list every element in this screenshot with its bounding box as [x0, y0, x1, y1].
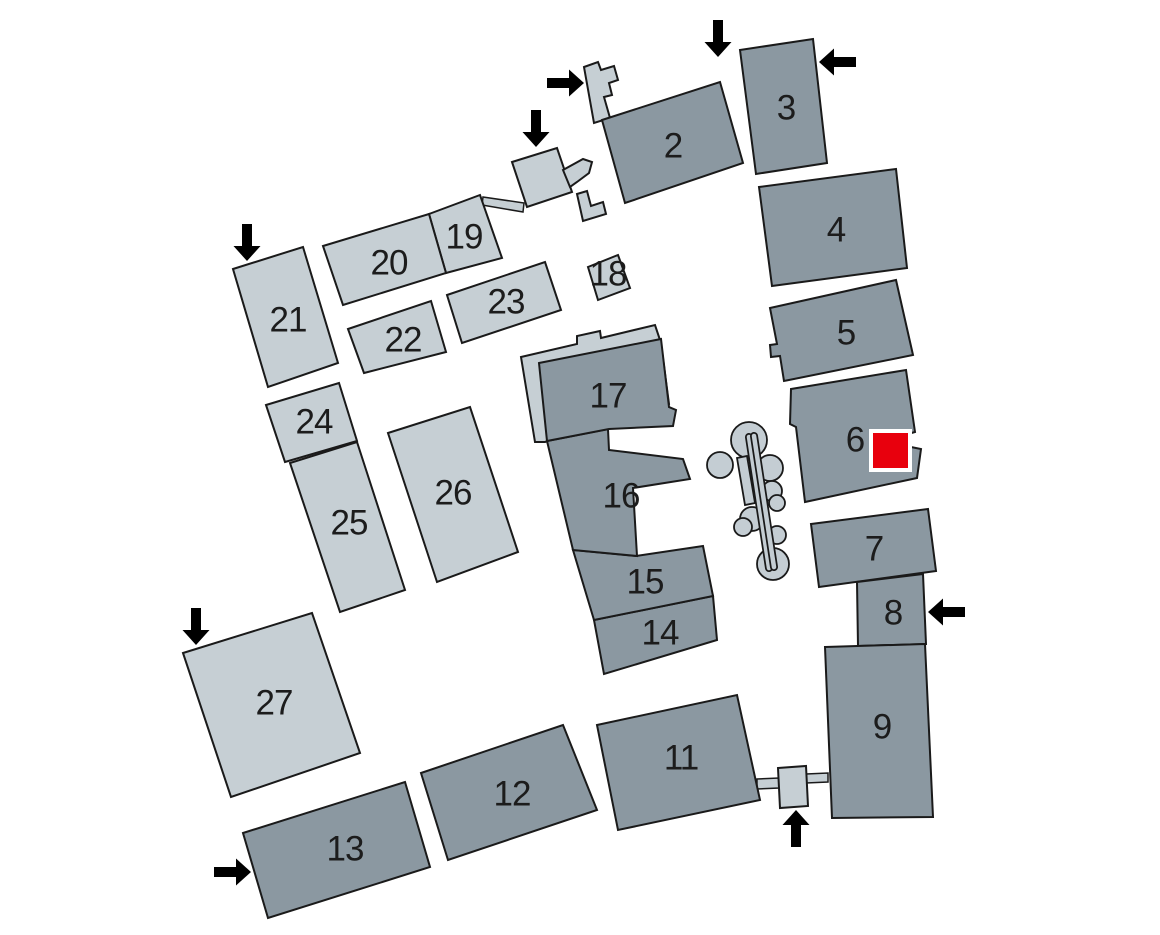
entrance-arrow-down-pavilion-icon — [523, 110, 550, 147]
building-26-label: 26 — [435, 474, 472, 513]
annex-building-2-footprint — [584, 62, 618, 123]
entrance-arrow-up-pavilion-icon — [783, 810, 810, 847]
entrance-arrow-right-annex-icon — [547, 70, 584, 97]
entrance-arrow-down-building-2-icon — [705, 20, 732, 57]
building-20-label: 20 — [371, 244, 408, 283]
building-18-label: 18 — [590, 255, 627, 294]
building-17-label: 17 — [590, 377, 627, 416]
entrance-arrow-down-building-21-icon — [234, 224, 261, 261]
campus-map: 2 3 4 5 6 7 8 9 11 12 13 14 15 16 17 18 … — [0, 0, 1160, 935]
building-22-label: 22 — [385, 321, 422, 360]
corridor-building-11-west — [757, 778, 779, 789]
entrance-arrow-down-building-27-icon — [183, 608, 210, 645]
entrance-arrow-right-building-13-icon — [214, 859, 251, 886]
building-7-label: 7 — [865, 530, 883, 569]
entrance-arrow-left-building-8-icon — [928, 599, 965, 626]
building-8-label: 8 — [884, 594, 902, 633]
pavilion-building-19-footprint — [512, 148, 572, 207]
building-12-label: 12 — [494, 775, 531, 814]
pavilion-step-annex-footprint — [563, 159, 592, 187]
corridor-building-9-east — [806, 773, 828, 783]
campus-map-svg: 2 3 4 5 6 7 8 9 11 12 13 14 15 16 17 18 … — [0, 0, 1160, 935]
l-shaped-annex-footprint — [577, 191, 606, 221]
tree-icon — [769, 495, 785, 511]
building-2-label: 2 — [664, 127, 682, 166]
building-5-label: 5 — [837, 314, 855, 353]
building-25-label: 25 — [331, 504, 368, 543]
building-14-label: 14 — [642, 614, 679, 653]
building-15-label: 15 — [627, 563, 664, 602]
building-24-label: 24 — [296, 403, 333, 442]
building-11-label: 11 — [664, 739, 698, 778]
tree-icon — [707, 452, 733, 478]
landscaping — [707, 422, 789, 580]
building-23-label: 23 — [488, 283, 525, 322]
building-3-label: 3 — [777, 89, 795, 128]
tree-icon — [734, 518, 752, 536]
selected-location-marker — [871, 431, 910, 470]
building-9-label: 9 — [873, 708, 891, 747]
building-21-label: 21 — [270, 301, 307, 340]
building-6-label: 6 — [846, 421, 864, 460]
building-27-label: 27 — [256, 684, 293, 723]
building-13-label: 13 — [327, 830, 364, 869]
entrance-arrow-left-building-3-icon — [819, 49, 856, 76]
building-19-label: 19 — [446, 218, 483, 257]
building-16-label: 16 — [603, 477, 640, 516]
building-4-label: 4 — [827, 211, 846, 250]
corridor-to-building-19 — [482, 197, 524, 212]
entrance-pavilion-footprint — [778, 766, 808, 808]
